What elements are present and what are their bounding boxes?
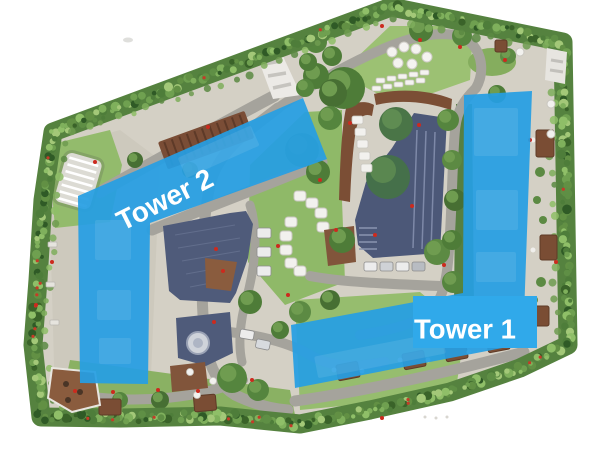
svg-text:Tower 1: Tower 1 xyxy=(414,314,516,345)
